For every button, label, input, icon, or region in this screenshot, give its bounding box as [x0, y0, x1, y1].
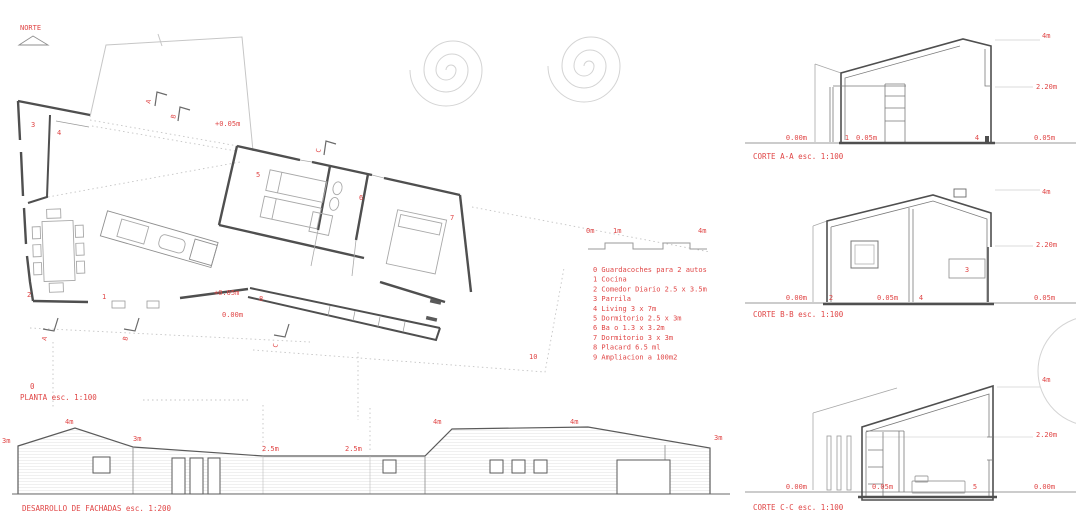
window-inner [855, 245, 874, 264]
window [383, 460, 396, 473]
legend-item: 9 Ampliacion a 100m2 [593, 353, 677, 361]
left-wing-walls [18, 101, 248, 302]
door [172, 458, 185, 494]
window [512, 460, 525, 473]
room-label-bath: 6 [359, 194, 363, 202]
room-label-cocina: 1 [102, 293, 106, 301]
height-label: 4m [1042, 32, 1050, 40]
tree-spiral-icon [548, 37, 620, 102]
bed [912, 476, 965, 493]
plan-number: 0 [30, 382, 35, 391]
legend-item: 6 Ba o 1.3 x 3.2m [593, 324, 665, 332]
window [490, 460, 503, 473]
legend-item: 5 Dormitorio 2.5 x 3m [593, 315, 682, 323]
room-number: 1 [845, 134, 849, 142]
perspective-lines [813, 221, 827, 302]
dim-label: 4m [570, 418, 578, 426]
dim-label: 3m [714, 434, 722, 442]
scale-bar: 0m 1m 4m [586, 227, 707, 249]
legend-item: 1 Cocina [593, 276, 627, 284]
bed-room7 [386, 210, 446, 274]
dim-label: 4m [433, 418, 441, 426]
dim-label: 2.5m [345, 445, 362, 453]
door [190, 458, 203, 494]
section-bb-labels: 0.00m 2 0.05m 4 3 0.05m 2.20m 4m CORTE B… [753, 188, 1057, 319]
dimension-leaders [995, 40, 1040, 87]
height-label: 2.20m [1036, 241, 1057, 249]
plan-labels: 3 4 +0.05m 5 6 7 2 1 +0.05m 8 0.00m 10 A… [27, 99, 537, 361]
legend-item: 8 Placard 6.5 ml [593, 344, 660, 352]
level-label: 0.05m [1034, 134, 1055, 142]
facade-development: 3m 4m 3m 2.5m 2.5m 4m 4m 3m DESARROLLO D… [2, 418, 730, 513]
garage-door [617, 460, 670, 494]
room-number: 4 [919, 294, 923, 302]
level-label: 0.05m [856, 134, 877, 142]
level-label: 0.00m [786, 134, 807, 142]
legend-item: 3 Parrila [593, 295, 631, 303]
section-marker-c: C [271, 343, 280, 349]
beds-room5 [260, 170, 327, 229]
door [208, 458, 220, 494]
bedroom-bar-walls [219, 146, 471, 302]
room-label-dorm1: 5 [256, 171, 260, 179]
room-label-ampliacion: 10 [529, 353, 537, 361]
room-number: 2 [829, 294, 833, 302]
section-aa: 0.00m 1 0.05m 4 0.05m 2.20m 4m CORTE A-A… [745, 32, 1076, 161]
level-label: +0.05m [215, 120, 240, 128]
dimension-leaders [995, 190, 1040, 246]
section-bb: 0.00m 2 0.05m 4 3 0.05m 2.20m 4m CORTE B… [745, 188, 1076, 319]
room-label-dorm2: 7 [450, 214, 454, 222]
level-label: 0.05m [877, 294, 898, 302]
level-label: 0.00m [222, 311, 243, 319]
facade-body [18, 427, 710, 494]
height-label: 2.20m [1036, 431, 1057, 439]
height-label: 4m [1042, 376, 1050, 384]
perspective-lines [815, 64, 841, 142]
section-title: CORTE B-B esc. 1:100 [753, 310, 844, 319]
dining-table [32, 208, 86, 293]
left-wing-openings [56, 121, 159, 308]
north-arrow: NORTE [19, 24, 48, 45]
legend-item: 0 Guardacoches para 2 autos [593, 266, 707, 274]
carport-slats [827, 436, 851, 490]
drawing-canvas: NORTE [0, 0, 1076, 519]
chimney [954, 189, 966, 197]
room-number: 4 [975, 134, 979, 142]
section-title: CORTE A-A esc. 1:100 [753, 152, 844, 161]
level-label: 0.00m [786, 294, 807, 302]
dim-label: 3m [133, 435, 141, 443]
legend-item: 7 Dormitorio 3 x 3m [593, 334, 673, 342]
scale-tick: 4m [698, 227, 706, 235]
architectural-sheet: NORTE [0, 0, 1076, 519]
plan-title-block: 0 PLANTA esc. 1:100 [20, 382, 97, 402]
section-inner-lines [831, 201, 987, 302]
section-marker-c: C [314, 148, 323, 154]
section-title: CORTE C-C esc. 1:100 [753, 503, 844, 512]
scale-tick: 0m [586, 227, 594, 235]
room-label-living: 4 [57, 129, 61, 137]
section-cc: 0.00m 0.05m 5 0.00m 2.20m 4m CORTE C-C e… [745, 376, 1076, 512]
legend: 0 Guardacoches para 2 autos 1 Cocina 2 C… [593, 266, 707, 361]
level-label: 0.05m [1034, 294, 1055, 302]
section-marker-a: A [40, 336, 49, 342]
placard-strip [248, 288, 441, 340]
north-label: NORTE [20, 24, 41, 32]
plan-title: PLANTA esc. 1:100 [20, 393, 97, 402]
scale-tick: 1m [613, 227, 621, 235]
height-label: 4m [1042, 188, 1050, 196]
dim-label: 3m [2, 437, 10, 445]
window [93, 457, 110, 473]
room-label-parrila: 3 [31, 121, 35, 129]
room-label-comedor: 2 [27, 291, 31, 299]
section-marker-a: A [144, 99, 153, 105]
tree-spiral-icon [410, 41, 482, 106]
perspective-lines [813, 388, 897, 490]
section-inner-lines [830, 46, 991, 142]
level-label: +0.05m [214, 289, 239, 297]
legend-item: 4 Living 3 x 7m [593, 305, 656, 313]
facade-title: DESARROLLO DE FACHADAS esc. 1:200 [22, 504, 171, 513]
section-marker-b: B [169, 114, 178, 120]
legend-item: 2 Comedor Diario 2.5 x 3.5m [593, 285, 707, 293]
window [534, 460, 547, 473]
site-boundary [90, 34, 253, 151]
room-label-placard: 8 [259, 295, 263, 303]
room-number: 5 [973, 483, 977, 491]
height-label: 2.20m [1036, 83, 1057, 91]
north-triangle-icon [19, 36, 48, 45]
dim-label: 4m [65, 418, 73, 426]
wall-post [985, 136, 989, 143]
dim-label: 2.5m [262, 445, 279, 453]
level-label: 0.00m [786, 483, 807, 491]
section-marker-hooks [43, 92, 336, 337]
tree-spirals [410, 37, 1076, 426]
bar-window-sills [300, 160, 384, 276]
kitchen-island [100, 211, 218, 268]
level-label: 0.00m [1034, 483, 1055, 491]
room-number: 3 [965, 266, 969, 274]
section-marker-b: B [121, 336, 130, 342]
section-outline [841, 39, 991, 143]
tree-circle-icon [1038, 316, 1076, 426]
level-label: 0.05m [872, 483, 893, 491]
